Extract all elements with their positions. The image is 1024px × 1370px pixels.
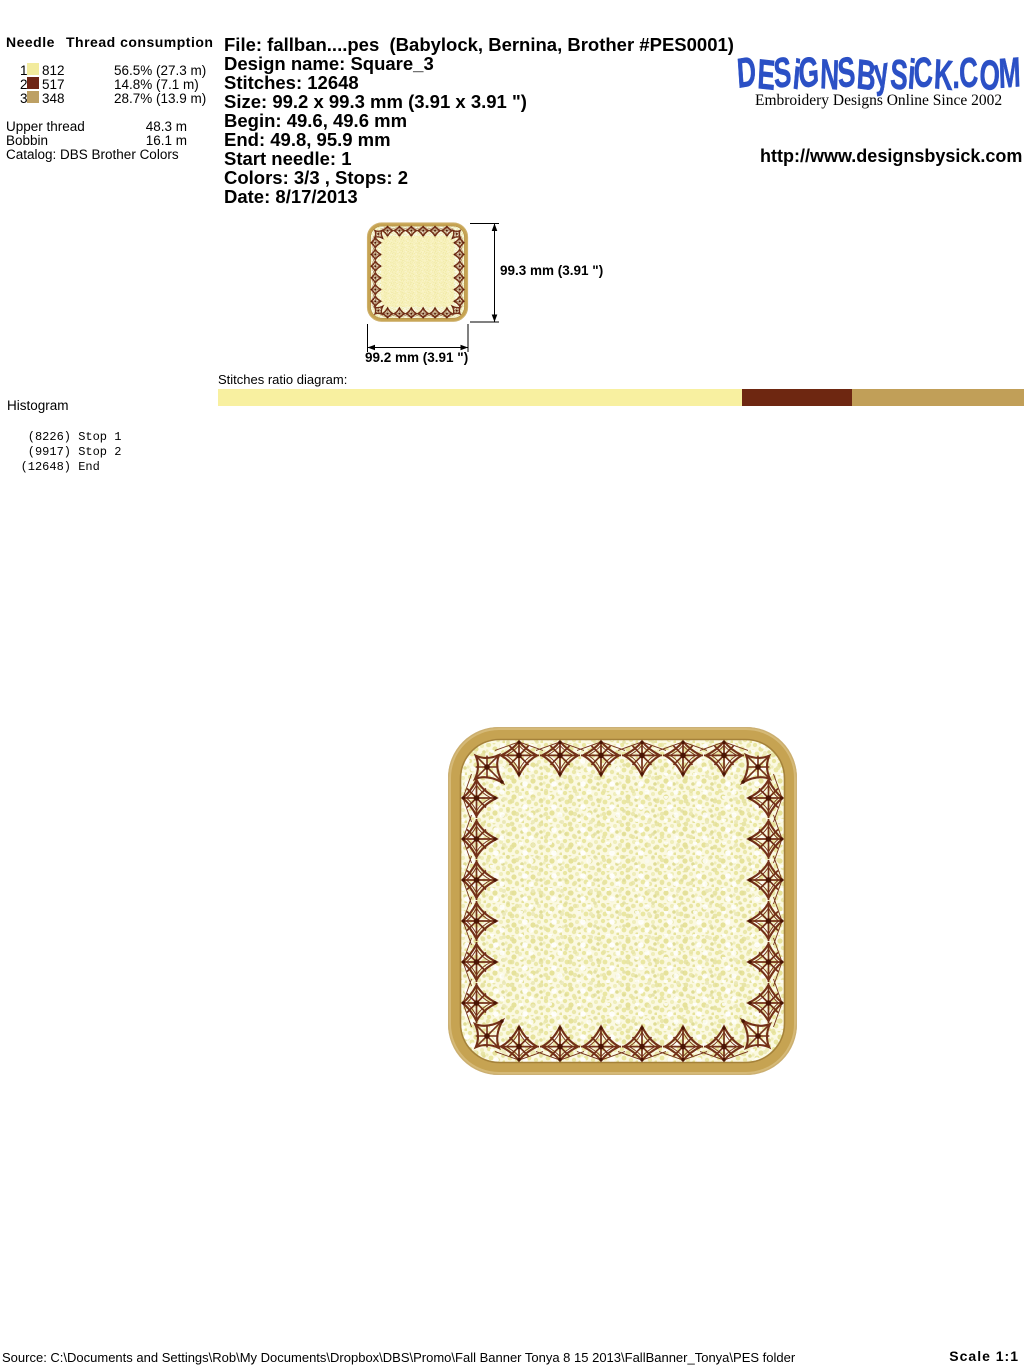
- svg-text:DESiGNSBySiCK.COM: DESiGNSBySiCK.COM: [734, 48, 1021, 99]
